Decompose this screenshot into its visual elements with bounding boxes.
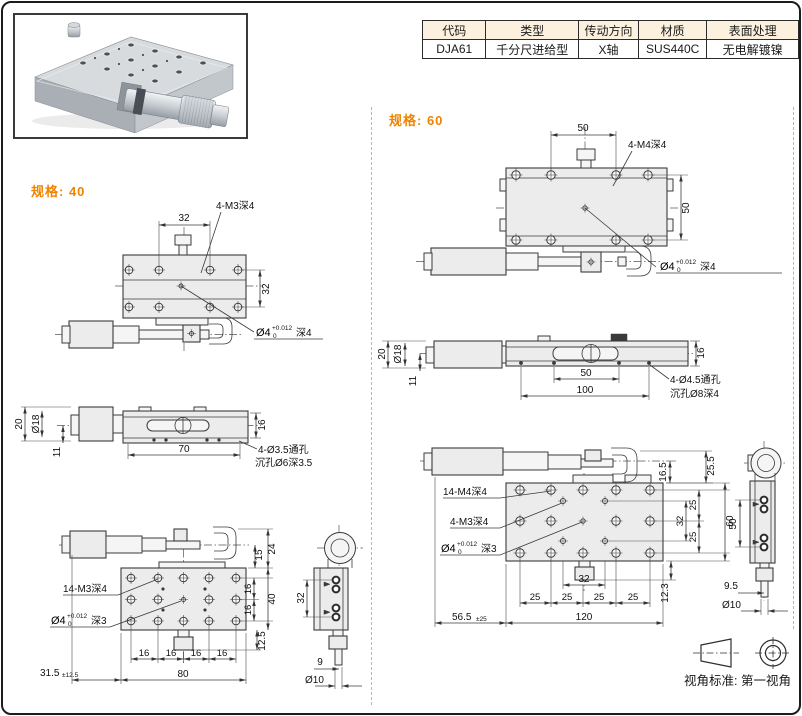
dim-front-70: 70: [178, 444, 190, 455]
dim-right-25a: 25: [688, 500, 699, 511]
dim-travel-60: 56.5: [452, 612, 472, 623]
dim-pitch16-2: 16: [166, 648, 177, 659]
pin-callout-bottom-depth: 深3: [91, 615, 107, 627]
clamp-knob-photo: [68, 23, 80, 37]
dim-pitch25-2: 25: [562, 592, 573, 603]
end-knob: [329, 636, 347, 649]
cbore-callout-60: 沉孔Ø8深4: [670, 387, 719, 400]
thru-hole-callout: 4-Ø3.5通孔: [258, 444, 309, 456]
product-photo-frame: [13, 13, 248, 139]
dim-travel-tol: ±12.5: [62, 672, 79, 679]
dim-25-5: 25.5: [706, 456, 717, 476]
clamp-knob: [175, 235, 191, 245]
pin-callout-depth: 深4: [296, 327, 312, 339]
dim-travel: 31.5: [40, 668, 60, 679]
micrometer-thimble-front: [79, 407, 113, 441]
dim-front-20-60: 20: [378, 348, 388, 360]
dim-top-height: 32: [261, 283, 272, 295]
s40-front-view: 20 Ø18 11 16 70 4-Ø3.5通孔 沉孔Ø6深3.5: [14, 407, 313, 469]
s60-bottom-view: 16.5 25.5 14-M4深4 4-M3深4 Ø4 +0.012 0 深3: [420, 448, 736, 627]
col-material: 材质: [638, 21, 706, 40]
dim-front-100: 100: [577, 385, 594, 396]
dim-bottom-15: 15: [254, 549, 265, 561]
dim-front-16: 16: [257, 419, 268, 431]
pin-callout-tol-dn: 0: [273, 333, 277, 340]
thru-hole-callout-60: 4-Ø4.5通孔: [670, 374, 721, 386]
dim-top-width: 32: [178, 213, 190, 224]
dim-front-dia18-60: Ø18: [393, 344, 404, 363]
dim-front-16-60: 16: [696, 347, 707, 359]
dim-front-20: 20: [14, 418, 25, 430]
dim-end-dia10: Ø10: [305, 675, 324, 686]
dim-top-height-60: 50: [681, 202, 692, 214]
thread-callout-top: 4-M3深4: [216, 200, 255, 212]
pin-callout-bottom-depth-60: 深3: [481, 543, 497, 555]
dim-right-16a: 16: [243, 584, 254, 595]
dim-travel-tol-60: ±25: [476, 616, 487, 623]
cell-finish: 无电解镀镍: [707, 40, 799, 59]
dim-end-9-5: 9.5: [724, 581, 738, 592]
dim-end-32: 32: [296, 592, 307, 604]
col-code: 代码: [423, 21, 486, 40]
dim-pitch16-3: 16: [191, 648, 202, 659]
pin-callout-bottom-dia-60: Ø4: [441, 543, 456, 555]
dim-12-5: 12.5: [257, 631, 268, 651]
dim-front-50: 50: [580, 368, 592, 379]
spec40-drawing: 32 4-M3深4 32 Ø4 +0.012: [11, 193, 373, 703]
dim-end-50: 50: [728, 518, 739, 530]
pin-callout-dia: Ø4: [256, 327, 271, 339]
clamp-knob-60: [577, 149, 595, 160]
cbore-callout: 沉孔Ø6深3.5: [255, 456, 313, 469]
spec-table: 代码 类型 传动方向 材质 表面处理 DJA61 千分尺进给型 X轴 SUS44…: [422, 20, 799, 59]
spec-table-header-row: 代码 类型 传动方向 材质 表面处理: [423, 21, 799, 40]
dim-bottom-24: 24: [267, 543, 278, 555]
catalog-page: 代码 类型 传动方向 材质 表面处理 DJA61 千分尺进给型 X轴 SUS44…: [1, 1, 801, 715]
dim-pitch25-3: 25: [594, 592, 605, 603]
dim-12-3: 12.3: [660, 583, 671, 603]
col-direction: 传动方向: [579, 21, 639, 40]
dim-pitch25-4: 25: [628, 592, 639, 603]
dim-40: 40: [267, 593, 278, 605]
micrometer-thimble-bottom-60: [432, 448, 503, 475]
pin-callout-bottom-dia: Ø4: [51, 615, 66, 627]
s60-end-view: 50 9.5 Ø10: [722, 441, 788, 615]
dim-pitch25-1: 25: [530, 592, 541, 603]
micrometer-thimble: [69, 321, 113, 348]
cell-code: DJA61: [423, 40, 486, 59]
pin-callout-tol-up: +0.012: [272, 325, 292, 332]
dim-front-11-60: 11: [408, 375, 419, 386]
spec60-drawing: 50 4-M4深4 50 Ø4 +0.012: [378, 121, 802, 631]
dim-right-25b: 25: [688, 532, 699, 543]
thread-callout-bottom: 14-M3深4: [63, 583, 107, 595]
s40-end-view: 32 9 Ø10: [296, 525, 363, 689]
thread4-callout-60: 4-M3深4: [450, 516, 489, 528]
end-knob-60: [756, 568, 773, 581]
dim-end-9: 9: [317, 657, 323, 668]
pin-callout-depth-60: 深4: [700, 261, 716, 273]
pin-callout-bottom-tol-up-60: +0.012: [457, 541, 477, 548]
cell-type: 千分尺进给型: [486, 40, 579, 59]
pin-callout-tol-dn-60: 0: [677, 267, 681, 274]
pin-callout-bottom-tol-up: +0.012: [67, 613, 87, 620]
dim-80: 80: [177, 669, 189, 680]
dim-pitch16-1: 16: [139, 648, 150, 659]
dim-end-dia10-60: Ø10: [722, 600, 741, 611]
s40-bottom-view: 15 24 14-M3深4 Ø4 +0.012 0 深3: [40, 527, 278, 684]
dim-front-dia18: Ø18: [31, 414, 42, 433]
thread-callout-top-60: 4-M4深4: [628, 139, 667, 151]
pin-callout-dia-60: Ø4: [660, 261, 675, 273]
dim-front-11: 11: [52, 446, 63, 457]
product-photo: [15, 15, 242, 133]
dim-right-32: 32: [675, 516, 686, 527]
s60-front-view: 20 Ø18 11 16 50 100 4-Ø4.5通孔 沉孔Ø8深4: [378, 334, 721, 400]
micrometer-thimble-front-60: [434, 341, 502, 368]
dim-top-width-60: 50: [577, 123, 589, 134]
col-type: 类型: [486, 21, 579, 40]
dim-k32: 32: [578, 574, 590, 585]
spec-table-value-row: DJA61 千分尺进给型 X轴 SUS440C 无电解镀镍: [423, 40, 799, 59]
dim-16-5: 16.5: [658, 462, 669, 482]
cell-direction: X轴: [579, 40, 639, 59]
micrometer-thimble-bottom: [70, 531, 106, 558]
col-finish: 表面处理: [707, 21, 799, 40]
pin-callout-tol-up-60: +0.012: [676, 259, 696, 266]
cell-material: SUS440C: [638, 40, 706, 59]
view-standard-note: 视角标准: 第一视角: [684, 670, 791, 689]
dim-120: 120: [576, 612, 593, 623]
dim-right-16b: 16: [243, 605, 254, 616]
micrometer-thimble-60: [431, 248, 506, 275]
thread14-callout-60: 14-M4深4: [443, 486, 487, 498]
first-angle-symbol: [691, 637, 802, 673]
dim-pitch16-4: 16: [217, 648, 228, 659]
s60-plan-view: 50 4-M4深4 50: [496, 123, 692, 253]
